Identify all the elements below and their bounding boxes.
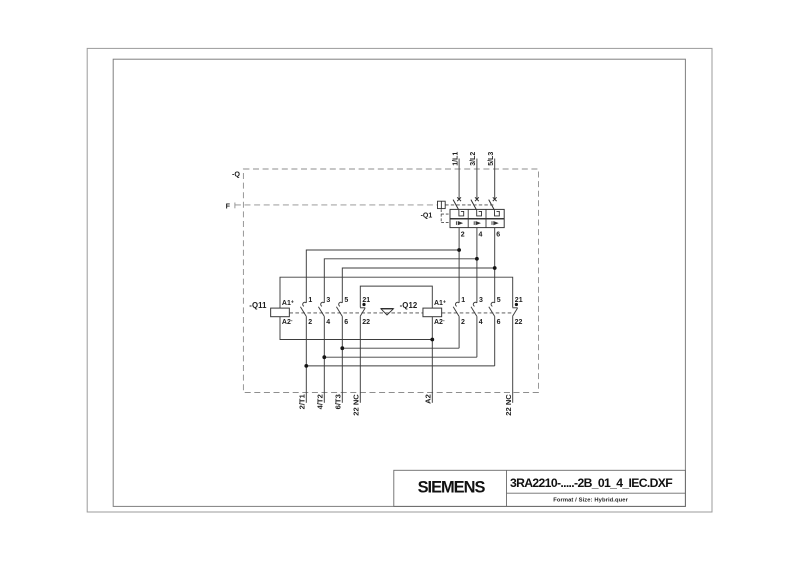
svg-text:6: 6: [496, 231, 500, 238]
svg-text:1: 1: [308, 297, 312, 304]
svg-text:2: 2: [461, 231, 465, 238]
svg-text:4: 4: [479, 319, 483, 326]
svg-text:2: 2: [308, 319, 312, 326]
svg-text:22: 22: [362, 319, 370, 326]
svg-text:4: 4: [326, 319, 330, 326]
svg-text:2: 2: [461, 319, 465, 326]
svg-text:-Q12: -Q12: [400, 301, 418, 310]
svg-text:5/L3: 5/L3: [488, 152, 495, 166]
svg-text:22: 22: [515, 319, 523, 326]
svg-text:F: F: [226, 201, 231, 210]
svg-text:22 NC: 22 NC: [504, 394, 513, 416]
svg-text:SIEMENS: SIEMENS: [418, 479, 486, 497]
svg-text:Format / Size: Hybrid.quer: Format / Size: Hybrid.quer: [553, 498, 628, 504]
svg-text:A2: A2: [424, 394, 433, 404]
svg-text:22 NC: 22 NC: [352, 394, 361, 416]
svg-text:-Q1: -Q1: [421, 212, 433, 219]
svg-text:1: 1: [461, 297, 465, 304]
svg-text:3/L2: 3/L2: [470, 152, 477, 166]
svg-text:-Q11: -Q11: [249, 301, 267, 310]
svg-text:6: 6: [497, 319, 501, 326]
svg-text:4/T2: 4/T2: [316, 394, 325, 409]
svg-text:6: 6: [344, 319, 348, 326]
svg-text:5: 5: [497, 297, 501, 304]
svg-text:3: 3: [479, 297, 483, 304]
svg-text:5: 5: [344, 297, 348, 304]
svg-text:4: 4: [479, 231, 483, 238]
svg-text:2/T1: 2/T1: [298, 393, 307, 409]
svg-text:3: 3: [326, 297, 330, 304]
svg-text:6/T3: 6/T3: [334, 394, 343, 409]
svg-text:1/L1: 1/L1: [452, 152, 459, 166]
svg-text:3RA2210-.....-2B_01_4_IEC.DXF: 3RA2210-.....-2B_01_4_IEC.DXF: [510, 476, 672, 490]
svg-text:-Q: -Q: [232, 170, 240, 179]
